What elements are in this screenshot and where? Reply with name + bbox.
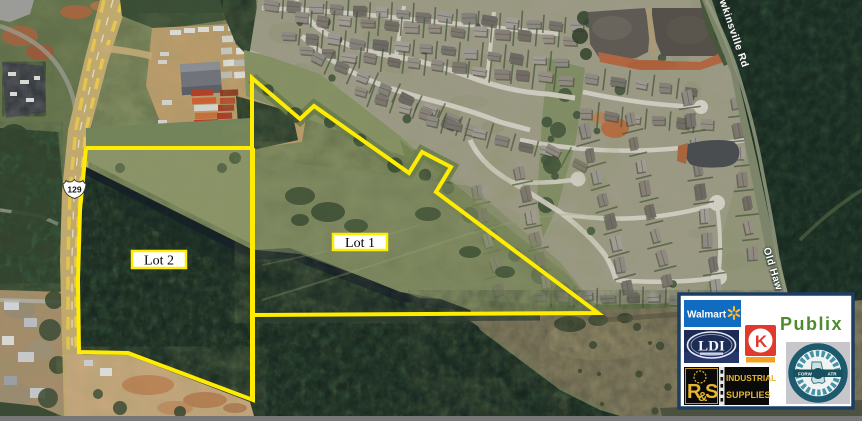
svg-text:129: 129 [67, 185, 81, 195]
svg-text:ATR: ATR [828, 372, 838, 377]
svg-text:SUPPLIES: SUPPLIES [726, 390, 771, 400]
svg-text:FORW: FORW [798, 372, 812, 377]
svg-text:S: S [705, 381, 718, 403]
svg-text:INDUSTRIAL: INDUSTRIAL [726, 373, 776, 383]
svg-text:LDI: LDI [698, 339, 725, 355]
svg-text:Lot 2: Lot 2 [144, 254, 174, 269]
svg-text:Lot 1: Lot 1 [345, 236, 375, 251]
svg-text:K: K [755, 332, 768, 351]
svg-text:Walmart: Walmart [687, 310, 727, 321]
svg-text:Publix: Publix [780, 314, 843, 334]
